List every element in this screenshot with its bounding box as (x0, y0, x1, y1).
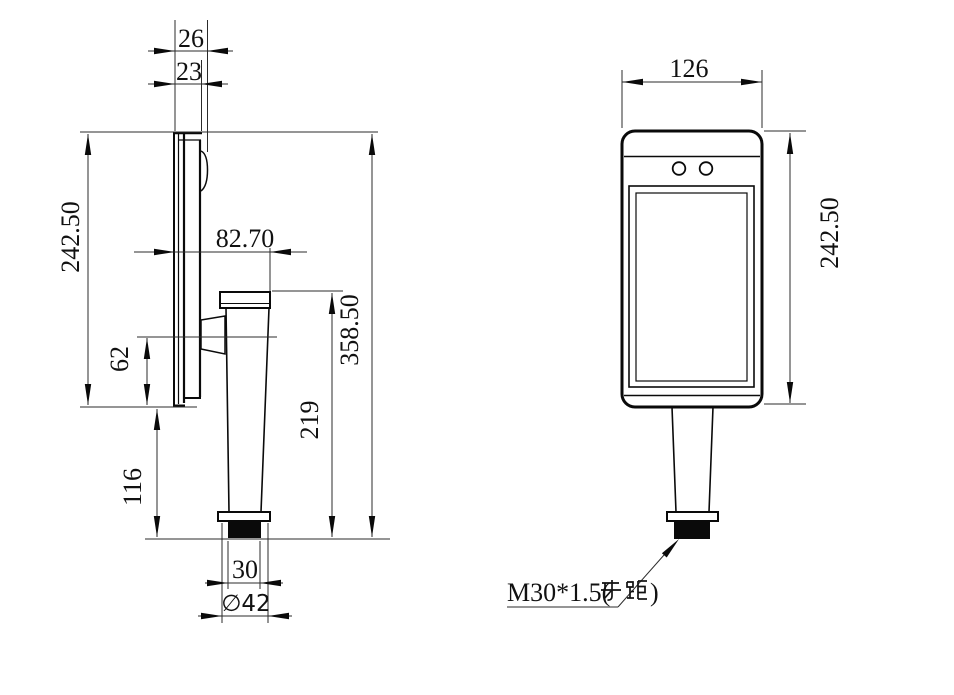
arrowhead-left-icon (201, 81, 222, 87)
dim-value: 358.50 (335, 294, 364, 366)
arrowhead-right-icon (207, 580, 228, 586)
arrowhead-right-icon (154, 249, 175, 255)
front-view-pole (667, 407, 718, 539)
front-view: 126 242.50 M30*1.5( ) (507, 54, 844, 607)
arrowhead-down-icon (144, 384, 150, 405)
dim-device-height-side: 242.50 (56, 134, 91, 405)
mount-bracket-side (201, 316, 225, 354)
dim-depth-body: 23 (148, 57, 228, 87)
dim-device-height-front: 242.50 (787, 133, 844, 403)
arrowhead-right-icon (154, 48, 175, 54)
char-ju-distance-glyph (627, 581, 647, 599)
arrowhead-up-icon (144, 338, 150, 359)
arrowhead-up-icon (369, 134, 375, 155)
dim-value: ∅42 (221, 591, 270, 617)
pole-cap-side (220, 292, 270, 308)
dim-pole-height: 219 (295, 293, 335, 537)
arrowhead-down-icon (369, 516, 375, 537)
camera-lens-icon (700, 162, 713, 175)
side-view: 26 23 242.50 82.70 62 (56, 20, 390, 623)
dimension-drawing: 26 23 242.50 82.70 62 (0, 0, 954, 695)
pole-flange-front (667, 512, 718, 521)
dim-lower-clearance: 116 (118, 409, 160, 537)
thread-callout: M30*1.5( ) (507, 539, 679, 607)
dim-value: 126 (670, 54, 709, 83)
pole-body-front (672, 407, 713, 512)
dim-mount-offset: 82.70 (134, 224, 307, 255)
dim-device-width: 126 (622, 54, 762, 85)
arrowhead-right-icon (154, 81, 175, 87)
device-outline (622, 131, 762, 407)
leader-arrowhead-icon (662, 539, 679, 558)
pole-body-side (226, 308, 269, 512)
front-view-device-body (622, 131, 762, 407)
thread-label-suffix: ) (650, 578, 659, 607)
dim-flange-diameter: ∅42 (198, 591, 292, 619)
dim-bracket-height: 62 (105, 338, 150, 405)
arrowhead-down-icon (154, 516, 160, 537)
side-view-pole (201, 292, 270, 538)
dim-value: 242.50 (815, 197, 844, 269)
arrowhead-left-icon (622, 79, 643, 85)
arrowhead-right-icon (741, 79, 762, 85)
thread-label-prefix: M30*1.5( (507, 578, 610, 607)
dim-value: 82.70 (216, 224, 275, 253)
thread-section-side (228, 521, 261, 538)
arrowhead-up-icon (85, 134, 91, 155)
dim-overall-height: 358.50 (335, 134, 375, 537)
dim-value: 23 (176, 57, 202, 86)
screen-inner-frame (636, 193, 747, 381)
dim-thread-width: 30 (205, 555, 283, 586)
arrowhead-right-icon (201, 613, 222, 619)
arrowhead-left-icon (260, 580, 281, 586)
arrowhead-left-icon (268, 613, 289, 619)
camera-bump-profile (201, 151, 208, 191)
arrowhead-up-icon (154, 409, 160, 430)
arrowhead-down-icon (787, 382, 793, 403)
dim-depth-total: 26 (148, 24, 233, 54)
arrowhead-down-icon (329, 516, 335, 537)
dim-value: 116 (118, 468, 147, 506)
pole-flange-side (218, 512, 270, 521)
camera-lens-icon (673, 162, 686, 175)
thread-section-front (674, 521, 710, 539)
technical-drawing-canvas: 26 23 242.50 82.70 62 (0, 0, 954, 695)
screen-outer-frame (629, 186, 754, 387)
arrowhead-down-icon (85, 384, 91, 405)
arrowhead-left-icon (207, 48, 228, 54)
dim-value: 62 (105, 346, 134, 372)
front-view-extension-lines (622, 70, 806, 404)
dim-value: 219 (295, 401, 324, 440)
side-view-device-body (173, 132, 208, 406)
arrowhead-up-icon (787, 133, 793, 154)
dim-value: 30 (232, 555, 258, 584)
dim-value: 242.50 (56, 201, 85, 273)
leader-line (618, 546, 672, 607)
dim-value: 26 (178, 24, 204, 53)
